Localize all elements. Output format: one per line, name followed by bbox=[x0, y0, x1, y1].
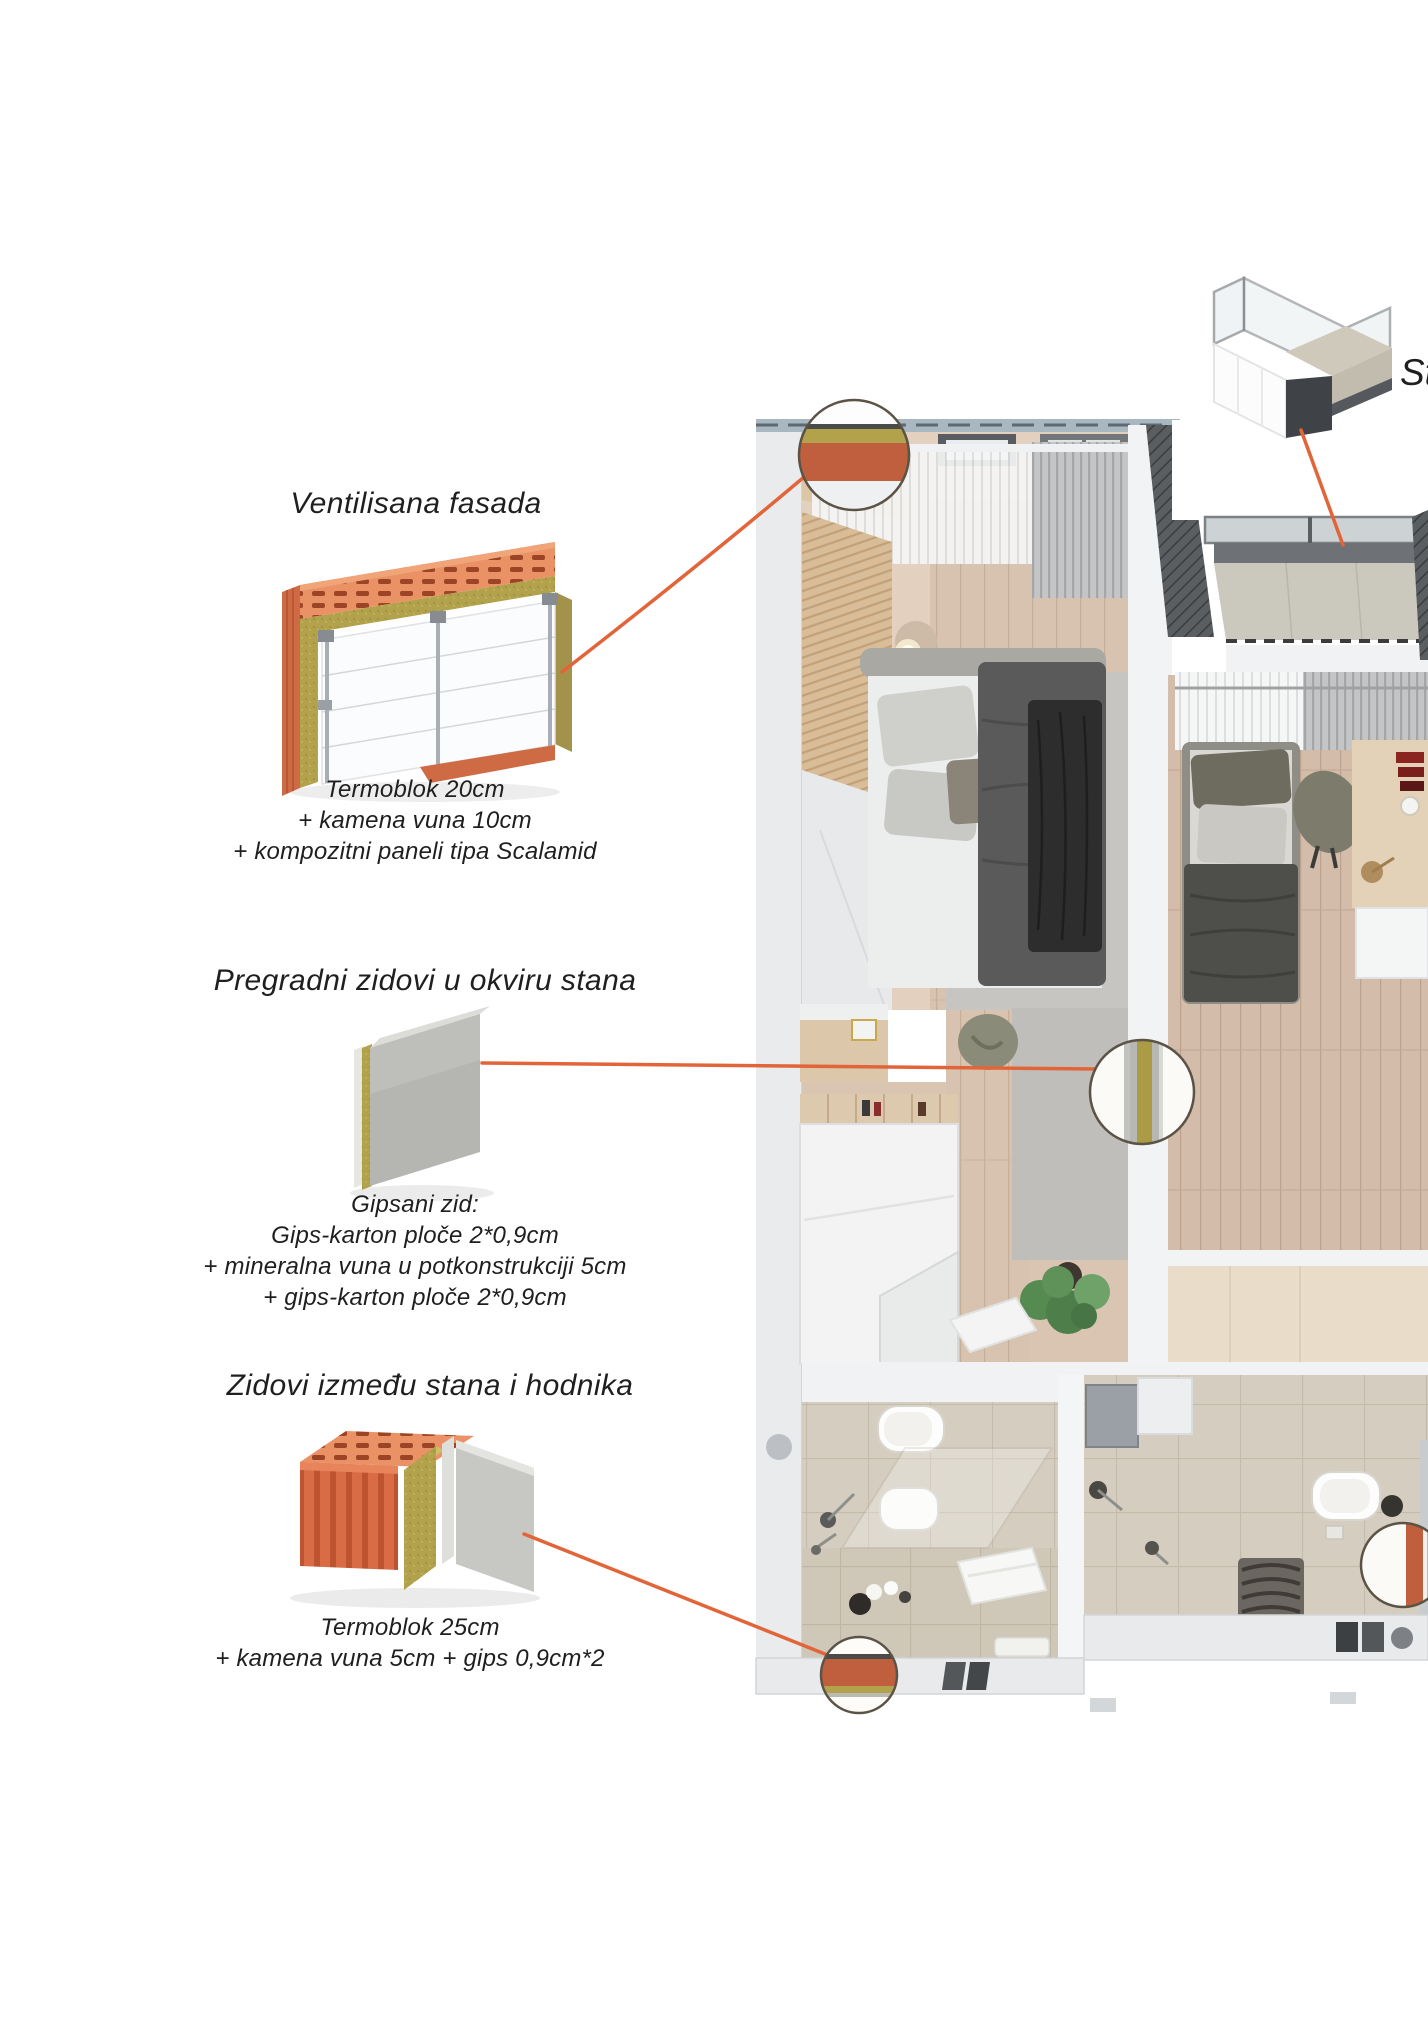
toilet-paper-holder bbox=[1326, 1526, 1343, 1539]
partition-spec-block: Gipsani zid: Gips-karton ploče 2*0,9cm +… bbox=[135, 1189, 695, 1313]
slab-tab bbox=[1090, 1698, 1116, 1712]
vent bbox=[942, 1662, 966, 1690]
beanbag-chair bbox=[958, 1014, 1018, 1070]
gypsum-wall-illustration bbox=[350, 1006, 494, 1201]
section-title-ventilisana-fasada: Ventilisana fasada bbox=[156, 486, 676, 522]
glass-railing bbox=[1214, 278, 1244, 344]
shelf-bottle bbox=[862, 1100, 870, 1116]
spec-line: Termoblok 25cm bbox=[130, 1612, 690, 1643]
spec-line: + kamena vuna 10cm bbox=[135, 805, 695, 836]
wall-detail-dot bbox=[766, 1434, 792, 1460]
single-bed bbox=[1182, 742, 1300, 1004]
slab-tab bbox=[1330, 1692, 1356, 1704]
bathroom-main bbox=[802, 1402, 1060, 1658]
waste-bin bbox=[1381, 1495, 1403, 1517]
termoblok-wall-illustration bbox=[290, 1431, 540, 1608]
section-title-zidovi-izmedju: Zidovi između stana i hodnika bbox=[170, 1368, 690, 1404]
white-dresser bbox=[1356, 908, 1428, 978]
balcony-inner-wall bbox=[1286, 376, 1332, 438]
section-title-pregradni-zidovi: Pregradni zidovi u okviru stana bbox=[165, 963, 685, 999]
wool-front bbox=[404, 1446, 436, 1590]
washing-machine bbox=[1086, 1385, 1138, 1447]
wardrobe bbox=[800, 1094, 958, 1364]
gips-board-2 bbox=[456, 1440, 534, 1592]
picture-frame bbox=[852, 1020, 876, 1040]
bedroom2-curtain-light bbox=[1175, 672, 1303, 750]
spec-line: Gipsani zid: bbox=[135, 1189, 695, 1220]
vent bbox=[966, 1662, 990, 1690]
plan-outer-wall-left bbox=[756, 420, 802, 1692]
bath-tray bbox=[995, 1638, 1049, 1656]
spec-line: + kamena vuna 5cm + gips 0,9cm*2 bbox=[130, 1643, 690, 1674]
balcony-label-clipped: St bbox=[1400, 352, 1428, 394]
facade-bracket bbox=[318, 630, 334, 642]
spec-line: + kompozitni paneli tipa Scalamid bbox=[135, 836, 695, 867]
architecture-diagram-canvas bbox=[0, 0, 1428, 2018]
double-bed bbox=[860, 648, 1106, 988]
termoblok-front bbox=[300, 1462, 398, 1570]
vent bbox=[1362, 1622, 1384, 1652]
pillow bbox=[1190, 749, 1292, 810]
vent bbox=[1336, 1622, 1358, 1652]
bathroom-partition-wall bbox=[1058, 1375, 1084, 1660]
hall-wall-spec-block: Termoblok 25cm + kamena vuna 5cm + gips … bbox=[130, 1612, 690, 1674]
ventilated-facade-illustration bbox=[282, 542, 572, 802]
books bbox=[1396, 752, 1424, 763]
facade-brick-left-face bbox=[282, 585, 300, 796]
terrace-sill bbox=[1214, 543, 1428, 563]
facade-spec-block: Termoblok 20cm + kamena vuna 10cm + komp… bbox=[135, 774, 695, 867]
gips-board-1 bbox=[442, 1436, 454, 1564]
spec-line: Gips-karton ploče 2*0,9cm bbox=[135, 1220, 695, 1251]
spec-line: Termoblok 20cm bbox=[135, 774, 695, 805]
terrace-concrete-floor bbox=[1214, 563, 1428, 640]
second-bedroom bbox=[1168, 672, 1428, 1250]
terrace-glazing bbox=[1205, 517, 1428, 543]
pillow bbox=[1197, 804, 1288, 867]
bath-cabinet bbox=[1138, 1378, 1192, 1434]
drain-cap bbox=[1391, 1627, 1413, 1649]
pleated-curtain bbox=[1032, 442, 1128, 598]
bedroom2-curtain-dark bbox=[1303, 672, 1428, 750]
desk bbox=[1352, 740, 1428, 908]
master-bedroom bbox=[800, 432, 1128, 1082]
spec-line: + gips-karton ploče 2*0,9cm bbox=[135, 1282, 695, 1313]
balcony-detail bbox=[1214, 278, 1392, 438]
pillow bbox=[876, 684, 980, 767]
spec-line: + mineralna vuna u potkonstrukciji 5cm bbox=[135, 1251, 695, 1282]
infographic-page: Ventilisana fasada Termoblok 20cm + kame… bbox=[0, 0, 1428, 2018]
floor-drain-grille bbox=[1238, 1558, 1304, 1622]
